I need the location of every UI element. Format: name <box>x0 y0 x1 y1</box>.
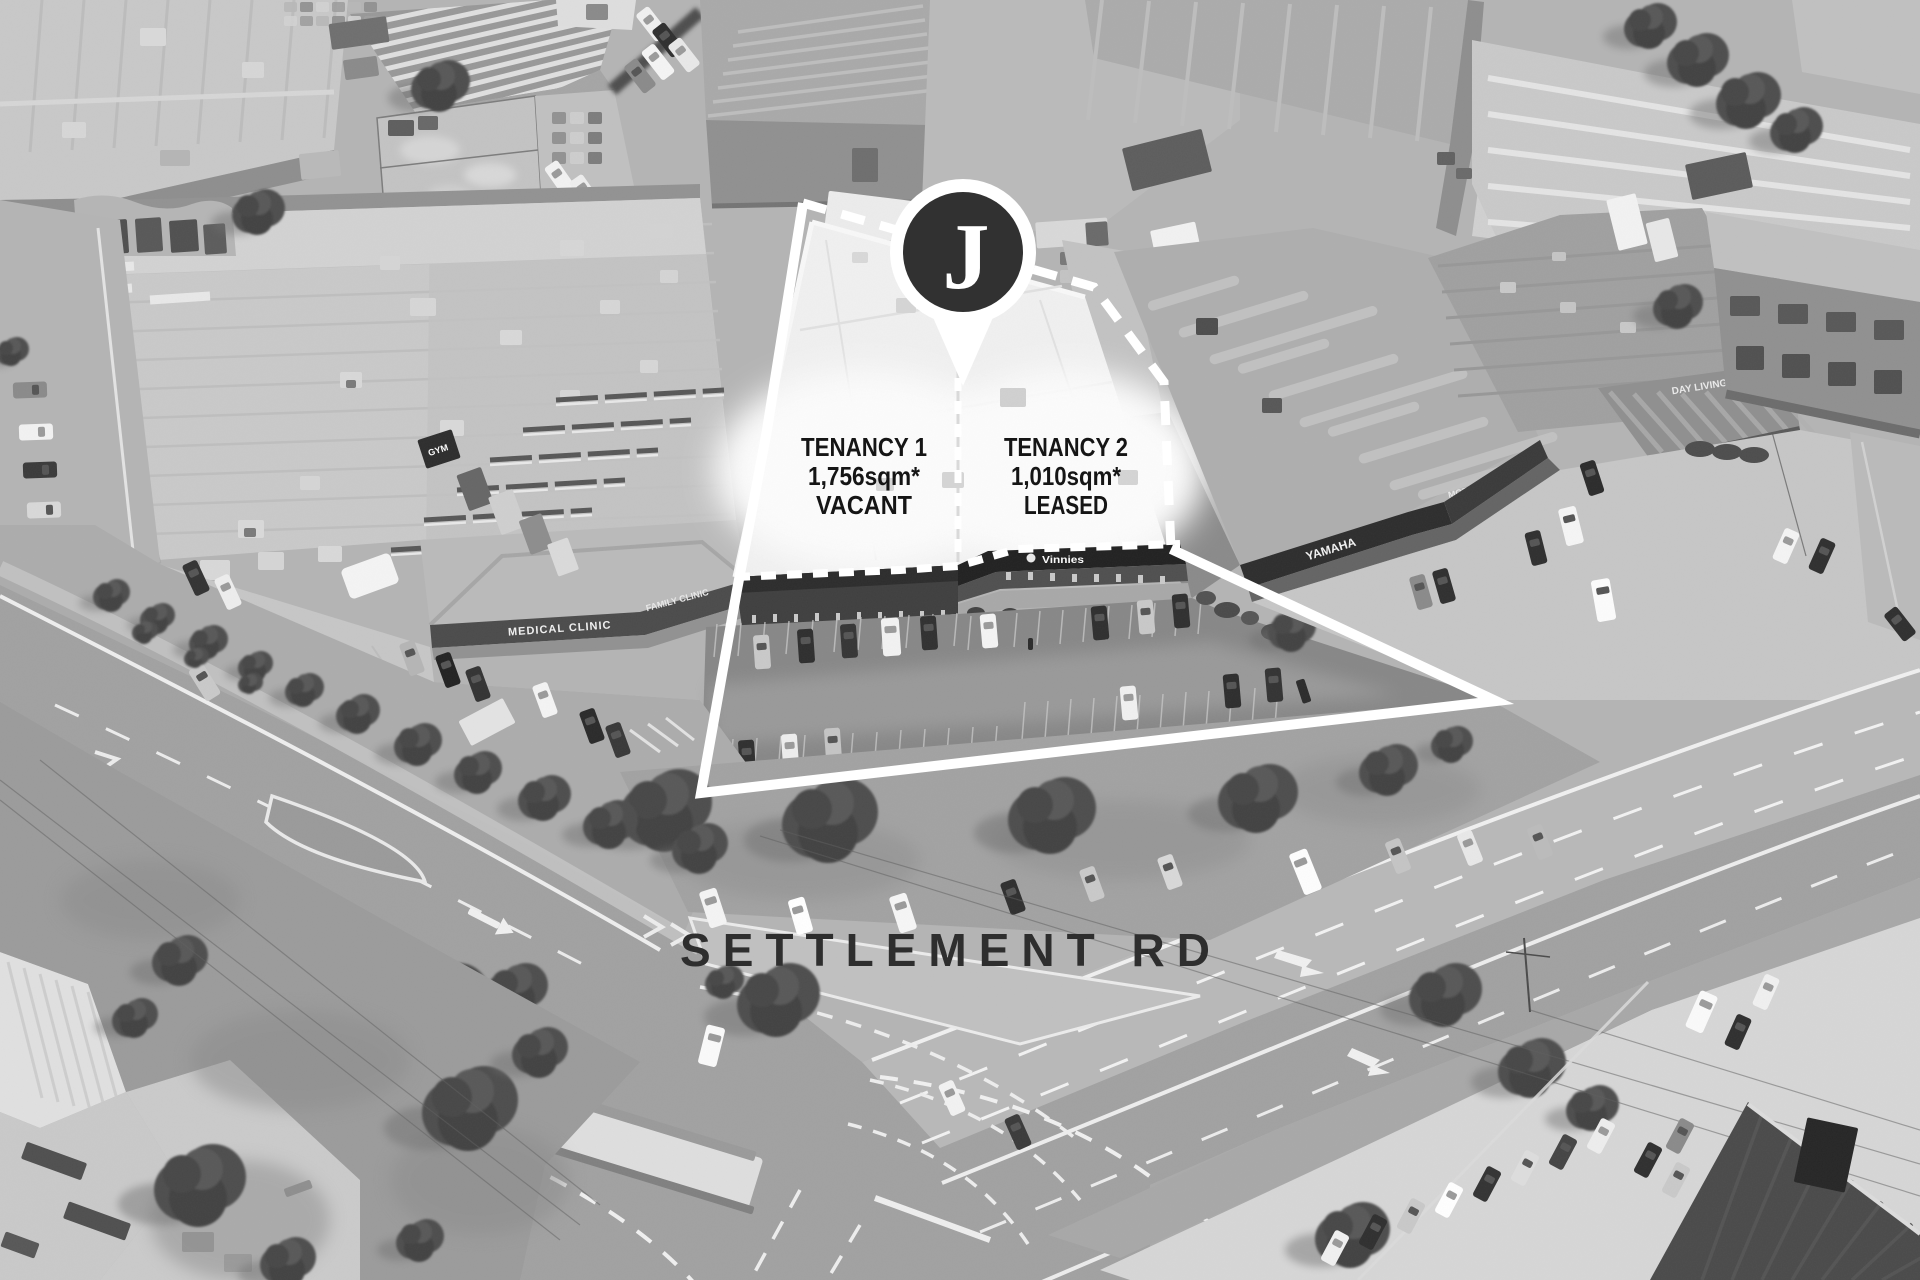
svg-text:TENANCY 1: TENANCY 1 <box>801 432 927 462</box>
svg-text:LEASED: LEASED <box>1024 490 1108 520</box>
svg-text:VACANT: VACANT <box>816 490 912 520</box>
svg-text:1,756sqm*: 1,756sqm* <box>808 461 921 491</box>
svg-text:1,010sqm*: 1,010sqm* <box>1011 461 1122 491</box>
svg-text:SETTLEMENT RD: SETTLEMENT RD <box>680 924 1222 976</box>
svg-text:TENANCY 2: TENANCY 2 <box>1004 432 1128 462</box>
svg-text:J: J <box>943 205 990 309</box>
